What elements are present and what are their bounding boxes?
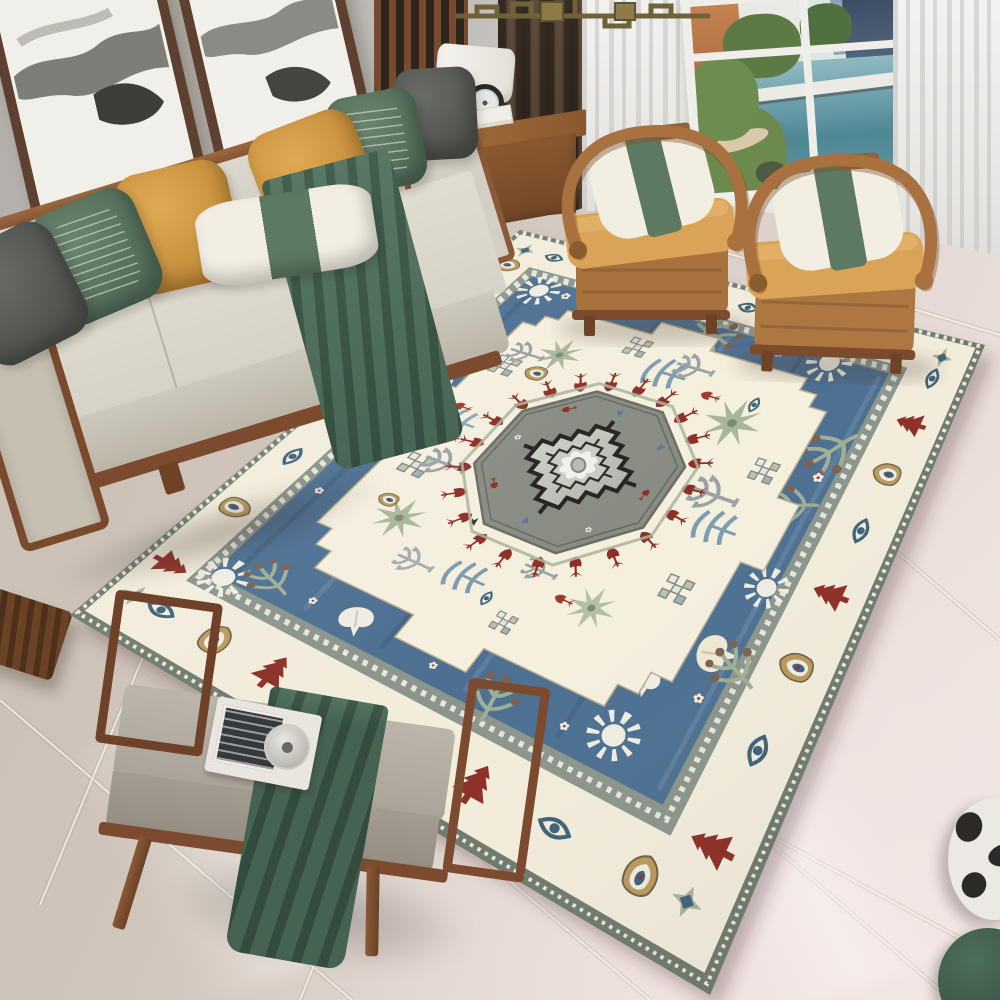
living-room-scene (0, 0, 1000, 1000)
bench-leg (365, 866, 380, 956)
bench-leg (112, 835, 152, 931)
bench (73, 670, 541, 1000)
bench-arm-left (95, 589, 223, 757)
sofa-leg (158, 461, 186, 496)
